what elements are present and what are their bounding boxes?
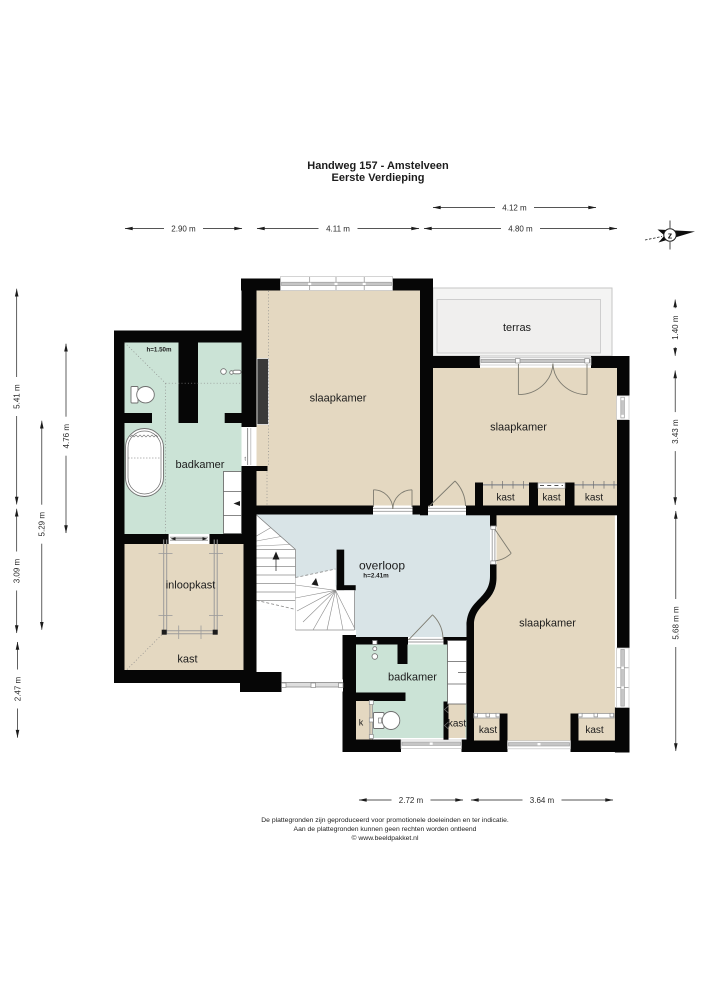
svg-text:slaapkamer: slaapkamer <box>310 393 367 405</box>
svg-text:De plattegronden zijn geproduc: De plattegronden zijn geproduceerd voor … <box>261 817 509 824</box>
svg-text:Handweg 157 - Amstelveen: Handweg 157 - Amstelveen <box>307 160 449 172</box>
svg-text:2.47 m: 2.47 m <box>13 676 22 701</box>
svg-text:h=1.50m: h=1.50m <box>147 347 172 354</box>
svg-text:3.64 m: 3.64 m <box>530 796 555 805</box>
svg-text:2.72 m: 2.72 m <box>399 796 424 805</box>
svg-text:badkamer: badkamer <box>388 672 437 684</box>
svg-text:© www.beeldpakket.nl: © www.beeldpakket.nl <box>352 834 419 842</box>
svg-text:z: z <box>668 231 673 241</box>
svg-text:5.68 m m: 5.68 m m <box>672 606 681 640</box>
svg-text:badkamer: badkamer <box>176 459 225 471</box>
svg-text:overloop: overloop <box>359 559 405 573</box>
svg-text:Aan de plattegronden kunnen ge: Aan de plattegronden kunnen geen rechten… <box>294 826 477 833</box>
svg-text:2.90 m: 2.90 m <box>171 225 196 234</box>
svg-text:kast: kast <box>585 725 604 736</box>
svg-text:kast: kast <box>496 493 515 504</box>
svg-text:Eerste Verdieping: Eerste Verdieping <box>332 172 425 184</box>
svg-text:k: k <box>359 718 364 728</box>
svg-text:slaapkamer: slaapkamer <box>490 422 547 434</box>
svg-text:5.41 m: 5.41 m <box>13 384 22 409</box>
svg-text:inloopkast: inloopkast <box>166 580 216 592</box>
svg-text:h=2.41m: h=2.41m <box>363 573 389 580</box>
svg-text:kast: kast <box>585 493 604 504</box>
svg-text:1.40 m: 1.40 m <box>671 315 680 340</box>
svg-text:terras: terras <box>503 322 532 334</box>
svg-text:3.09 m: 3.09 m <box>13 558 22 583</box>
svg-text:kast: kast <box>448 719 467 730</box>
svg-text:kast: kast <box>542 493 561 504</box>
svg-text:kast: kast <box>177 654 197 666</box>
svg-text:4.76 m: 4.76 m <box>62 424 71 449</box>
svg-text:4.11 m: 4.11 m <box>326 225 350 234</box>
svg-text:5.29 m: 5.29 m <box>38 512 47 537</box>
svg-text:4.12 m: 4.12 m <box>502 204 527 213</box>
svg-text:kast: kast <box>479 725 498 736</box>
svg-text:slaapkamer: slaapkamer <box>519 618 576 630</box>
svg-text:4.80 m: 4.80 m <box>508 225 533 234</box>
svg-text:3.43 m: 3.43 m <box>671 419 680 444</box>
